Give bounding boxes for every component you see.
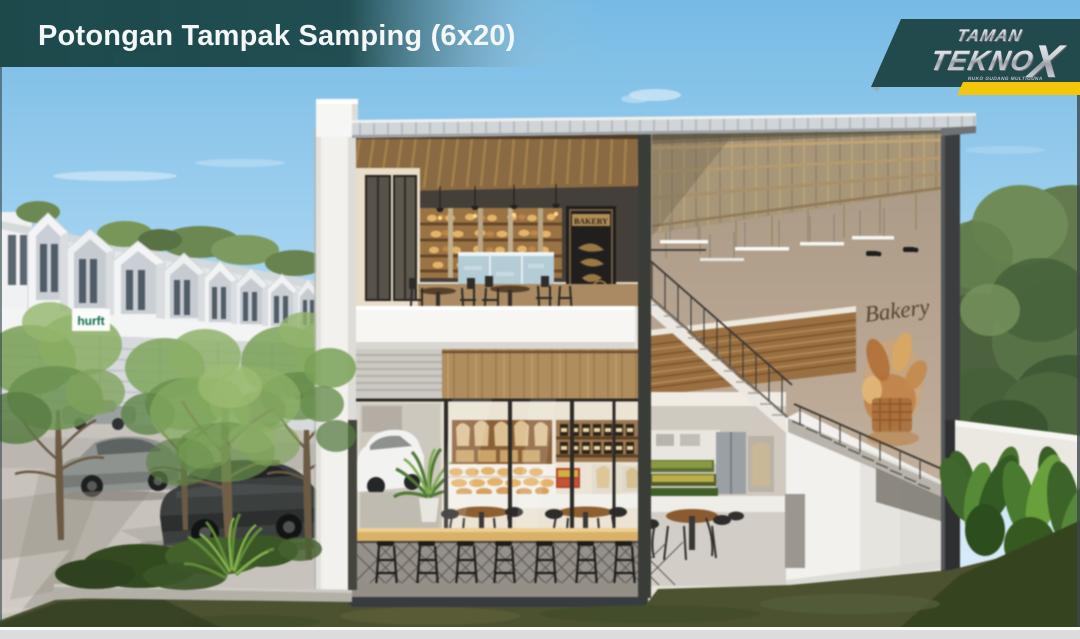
- svg-text:TEKNO: TEKNO: [927, 44, 1037, 76]
- svg-text:Potongan Tampak Samping (6x20): Potongan Tampak Samping (6x20): [38, 20, 516, 52]
- svg-text:TAMAN: TAMAN: [955, 25, 1024, 45]
- svg-text:RUKO GUDANG MULTIGUNA: RUKO GUDANG MULTIGUNA: [967, 76, 1043, 82]
